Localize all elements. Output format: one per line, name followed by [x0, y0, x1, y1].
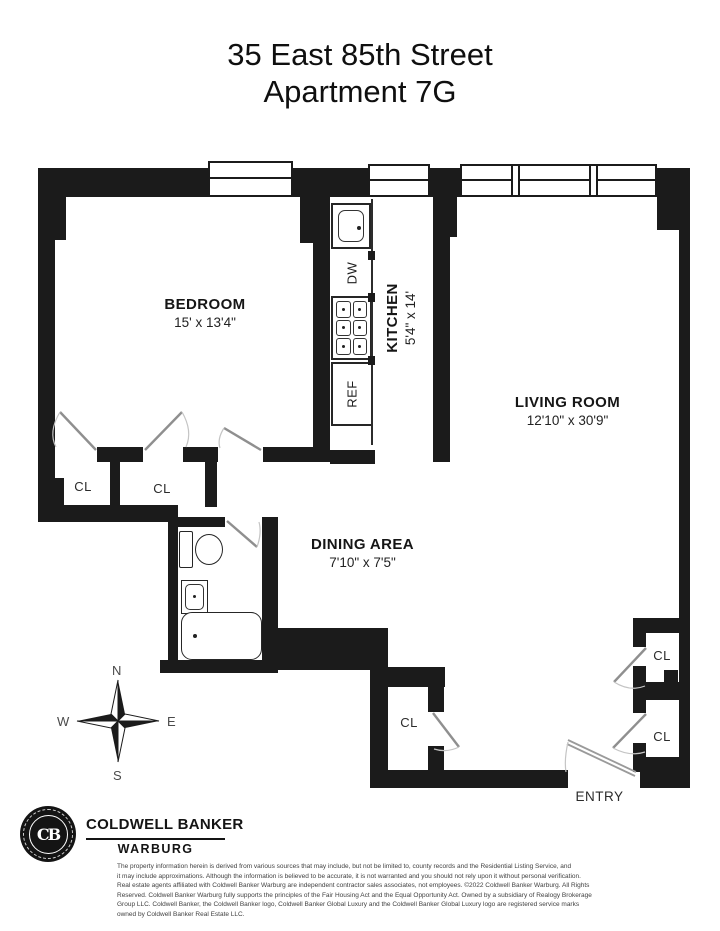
wall	[433, 237, 450, 462]
room-dims: 12'10" x 30'9"	[480, 412, 655, 430]
compass-east-label: E	[167, 714, 176, 729]
counter-return	[368, 251, 375, 260]
wall	[633, 743, 646, 757]
hall-closet-door	[433, 713, 459, 747]
page-title: 35 East 85th Street Apartment 7G	[0, 36, 720, 110]
logo-monogram: CB	[20, 806, 76, 862]
wall	[293, 168, 368, 197]
wall	[430, 168, 460, 197]
closet-label: CL	[392, 715, 426, 730]
wall	[205, 462, 217, 507]
wall	[370, 628, 388, 788]
kitchen-sink	[331, 203, 371, 249]
wall	[178, 517, 225, 527]
counter-return	[368, 356, 375, 365]
closet-label: CL	[645, 729, 679, 744]
wall	[183, 447, 218, 462]
wall	[388, 667, 445, 687]
compass-south-label: S	[113, 768, 122, 783]
window-mullion	[589, 166, 598, 195]
address-line: 35 East 85th Street	[0, 36, 720, 73]
brand-divider	[86, 838, 225, 840]
wall	[633, 682, 690, 700]
compass-west-label: W	[57, 714, 70, 729]
brand-division-name: WARBURG	[86, 842, 225, 856]
bedroom-closet-door	[60, 412, 96, 450]
bedroom-window	[208, 161, 293, 197]
toilet-tank	[179, 531, 193, 568]
room-name: DINING AREA	[285, 536, 440, 554]
room-dims: 15' x 13'4"	[130, 314, 280, 332]
closet-label: CL	[645, 648, 679, 663]
wall	[428, 687, 444, 712]
wall	[633, 666, 646, 682]
toilet-bowl	[195, 534, 223, 565]
disclaimer-line: The property information herein is deriv…	[117, 862, 709, 872]
room-dims: 7'10" x 7'5"	[285, 554, 440, 572]
disclaimer-line: Real estate agents affiliated with Coldw…	[117, 881, 709, 891]
compass-rose: N E S W	[57, 663, 176, 783]
room-dims: 5'4" x 14'	[402, 283, 420, 352]
kitchen-label: KITCHEN 5'4" x 14'	[384, 283, 420, 352]
wall	[330, 450, 375, 464]
dining-area-label: DINING AREA 7'10" x 7'5"	[285, 536, 440, 572]
wall	[110, 462, 120, 507]
wall	[38, 197, 66, 240]
wall	[433, 197, 457, 237]
entry-label: ENTRY	[552, 789, 647, 804]
bathtub	[181, 612, 262, 660]
closet-label: CL	[145, 481, 179, 496]
floor-plan-page: 35 East 85th Street Apartment 7G	[0, 0, 720, 931]
room-name: KITCHEN	[384, 283, 402, 352]
room-name: LIVING ROOM	[480, 394, 655, 412]
wall-left	[38, 197, 55, 520]
wall	[168, 505, 178, 670]
coldwell-banker-logo: CB	[20, 806, 76, 862]
wall	[664, 670, 678, 682]
wall	[97, 447, 143, 462]
legal-disclaimer: The property information herein is deriv…	[117, 862, 709, 920]
wall	[633, 757, 690, 772]
room-name: BEDROOM	[130, 296, 280, 314]
wall	[263, 447, 330, 462]
counter-return	[368, 293, 375, 302]
door-swing-arcs	[53, 412, 645, 772]
disclaimer-line: it may include approximations. Although …	[117, 872, 709, 882]
kitchen-window	[368, 164, 430, 197]
disclaimer-line: owned by Coldwell Banker Real Estate LLC…	[117, 910, 709, 920]
refrigerator-label: REF	[345, 380, 360, 408]
apartment-line: Apartment 7G	[0, 73, 720, 110]
wall	[633, 618, 690, 633]
bedroom-label: BEDROOM 15' x 13'4"	[130, 296, 280, 332]
living-room-window	[460, 164, 657, 197]
wall	[38, 478, 64, 508]
stove	[331, 296, 372, 360]
wall-bottom	[388, 770, 568, 788]
wall	[38, 505, 178, 522]
brand-company-name: COLDWELL BANKER	[86, 816, 244, 833]
disclaimer-line: Group LLC. Coldwell Banker, the Coldwell…	[117, 900, 709, 910]
wall	[300, 197, 330, 243]
bedroom-closet-door	[145, 412, 182, 450]
wall	[428, 746, 444, 770]
wall	[633, 633, 646, 647]
bathroom-sink	[181, 580, 208, 614]
living-room-label: LIVING ROOM 12'10" x 30'9"	[480, 394, 655, 430]
compass-north-label: N	[112, 663, 121, 678]
disclaimer-line: Reserved. Coldwell Banker Warburg fully …	[117, 891, 709, 901]
wall	[160, 660, 278, 673]
closet-label: CL	[66, 479, 100, 494]
wall	[313, 243, 330, 450]
entry-door-leaf	[567, 740, 636, 776]
bedroom-door	[224, 428, 261, 450]
wall	[640, 770, 690, 788]
dishwasher-label: DW	[345, 262, 360, 285]
counter-edge	[371, 199, 373, 445]
wall	[633, 700, 646, 713]
wall	[38, 168, 208, 197]
bathroom-door	[227, 521, 257, 547]
window-mullion	[511, 166, 520, 195]
